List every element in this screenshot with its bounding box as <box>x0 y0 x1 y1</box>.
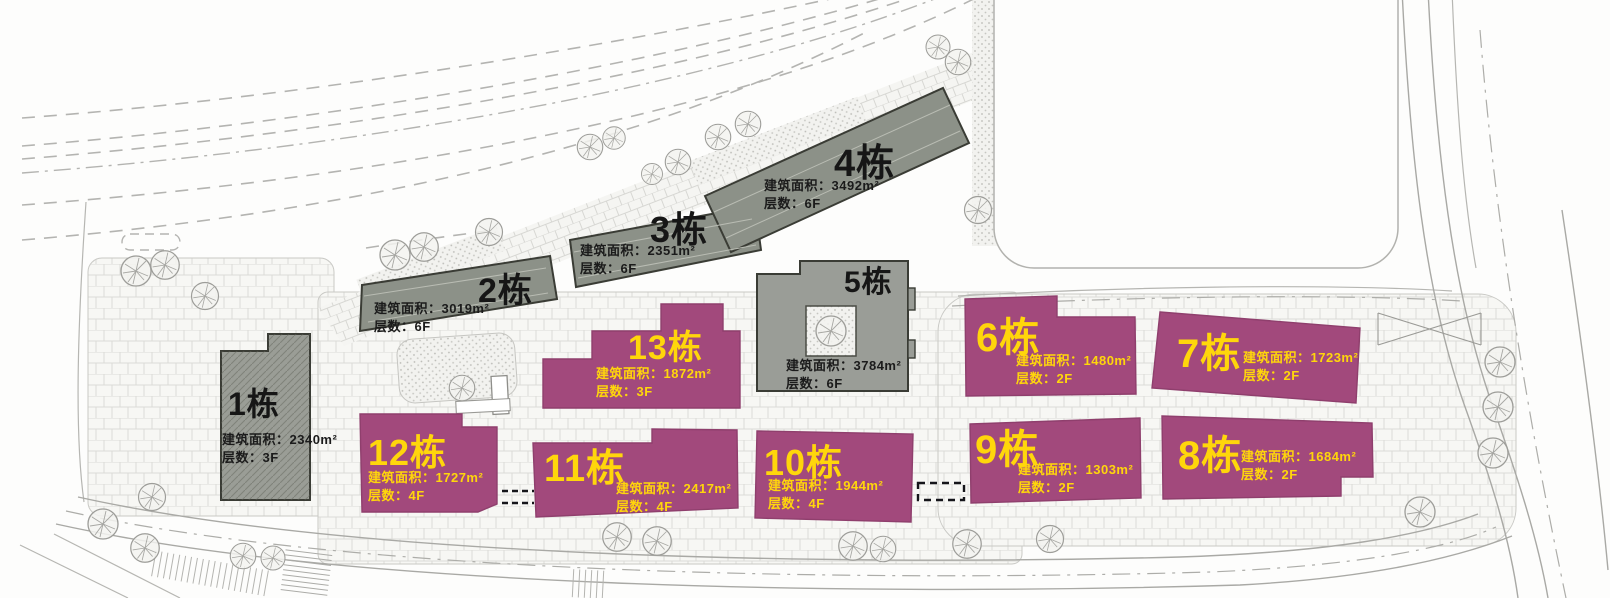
area-line: 建筑面积：2351m² <box>580 242 695 260</box>
building-7-stats: 建筑面积：1723m² 层数：2F <box>1243 349 1358 385</box>
tree-icon <box>131 534 160 563</box>
building-12-stats: 建筑面积：1727m² 层数：4F <box>368 469 483 505</box>
tree-icon <box>642 164 663 185</box>
building-13-stats: 建筑面积：1872m² 层数：3F <box>596 365 711 401</box>
area-line: 建筑面积：3784m² <box>786 357 901 375</box>
site-plan: 1栋 2栋 3栋 4栋 5栋 6栋 7栋 8栋 9栋 10栋 11栋 12栋 1… <box>0 0 1610 598</box>
tree-icon <box>139 484 166 511</box>
tree-icon <box>230 543 256 569</box>
tree-icon <box>603 523 632 552</box>
tree-icon <box>1483 392 1513 422</box>
west-site-boundary <box>78 202 86 502</box>
tree-icon <box>839 532 868 561</box>
tree-icon <box>870 536 896 562</box>
building-3-stats: 建筑面积：2351m² 层数：6F <box>580 242 695 278</box>
area-line: 建筑面积：1944m² <box>768 477 883 495</box>
tree-icon <box>121 256 151 286</box>
floors-line: 层数：2F <box>1016 370 1131 388</box>
floors-line: 层数：4F <box>368 487 483 505</box>
area-line: 建筑面积：3492m² <box>764 177 879 195</box>
floors-line: 层数：6F <box>764 195 879 213</box>
building-11-name-label: 11栋 <box>544 450 625 488</box>
area-line: 建筑面积：3019m² <box>374 300 489 318</box>
tree-icon <box>603 127 626 150</box>
building-1-name-label: 1栋 <box>228 388 280 420</box>
tree-icon <box>577 134 603 160</box>
floors-line: 层数：2F <box>1241 466 1356 484</box>
tree-icon <box>476 219 503 246</box>
building-13-name-label: 13栋 <box>628 331 703 365</box>
floors-line: 层数：6F <box>786 375 901 393</box>
tree-icon <box>410 233 439 262</box>
area-line: 建筑面积：2340m² <box>222 431 337 449</box>
floors-line: 层数：4F <box>616 498 731 516</box>
floors-line: 层数：6F <box>374 318 489 336</box>
building-10-stats: 建筑面积：1944m² 层数：4F <box>768 477 883 513</box>
tree-icon <box>1037 526 1064 553</box>
tree-icon <box>261 546 285 570</box>
area-line: 建筑面积：2417m² <box>616 480 731 498</box>
tree-icon <box>380 240 410 270</box>
building-8-name-label: 8栋 <box>1178 436 1242 476</box>
tree-icon <box>965 197 992 224</box>
adjacent-parcel <box>952 0 1462 306</box>
tree-icon <box>88 509 118 539</box>
building-1-stats: 建筑面积：2340m² 层数：3F <box>222 431 337 467</box>
building-8-stats: 建筑面积：1684m² 层数：2F <box>1241 448 1356 484</box>
floors-line: 层数：2F <box>1243 367 1358 385</box>
tree-icon <box>643 527 672 556</box>
building-5-stats: 建筑面积：3784m² 层数：6F <box>786 357 901 393</box>
area-line: 建筑面积：1480m² <box>1016 352 1131 370</box>
tree-icon <box>945 49 971 75</box>
tree-icon <box>735 111 761 137</box>
building-7-name-label: 7栋 <box>1177 334 1241 374</box>
floors-line: 层数：3F <box>596 383 711 401</box>
tree-icon <box>151 251 180 280</box>
building-6-stats: 建筑面积：1480m² 层数：2F <box>1016 352 1131 388</box>
tree-icon <box>665 149 691 175</box>
building-11-stats: 建筑面积：2417m² 层数：4F <box>616 480 731 516</box>
tree-icon <box>1405 497 1435 527</box>
tree-icon <box>1485 347 1515 377</box>
floors-line: 层数：3F <box>222 449 337 467</box>
area-line: 建筑面积：1303m² <box>1018 461 1133 479</box>
building-9-stats: 建筑面积：1303m² 层数：2F <box>1018 461 1133 497</box>
floors-line: 层数：6F <box>580 260 695 278</box>
floors-line: 层数：4F <box>768 495 883 513</box>
tree-icon <box>926 35 950 59</box>
building-4-stats: 建筑面积：3492m² 层数：6F <box>764 177 879 213</box>
tree-icon <box>705 124 731 150</box>
tree-icon <box>192 283 219 310</box>
courtyard-tree-icon <box>816 316 846 346</box>
tree-icon <box>953 530 982 559</box>
building-12-name-label: 12栋 <box>368 435 447 471</box>
building-2-stats: 建筑面积：3019m² 层数：6F <box>374 300 489 336</box>
floors-line: 层数：2F <box>1018 479 1133 497</box>
area-line: 建筑面积：1727m² <box>368 469 483 487</box>
area-line: 建筑面积：1684m² <box>1241 448 1356 466</box>
tree-icon <box>1478 438 1508 468</box>
building-5-name-label: 5栋 <box>844 268 893 298</box>
building-10-name-label: 10栋 <box>764 445 843 481</box>
tree-icon <box>449 375 475 401</box>
area-line: 建筑面积：1872m² <box>596 365 711 383</box>
area-line: 建筑面积：1723m² <box>1243 349 1358 367</box>
